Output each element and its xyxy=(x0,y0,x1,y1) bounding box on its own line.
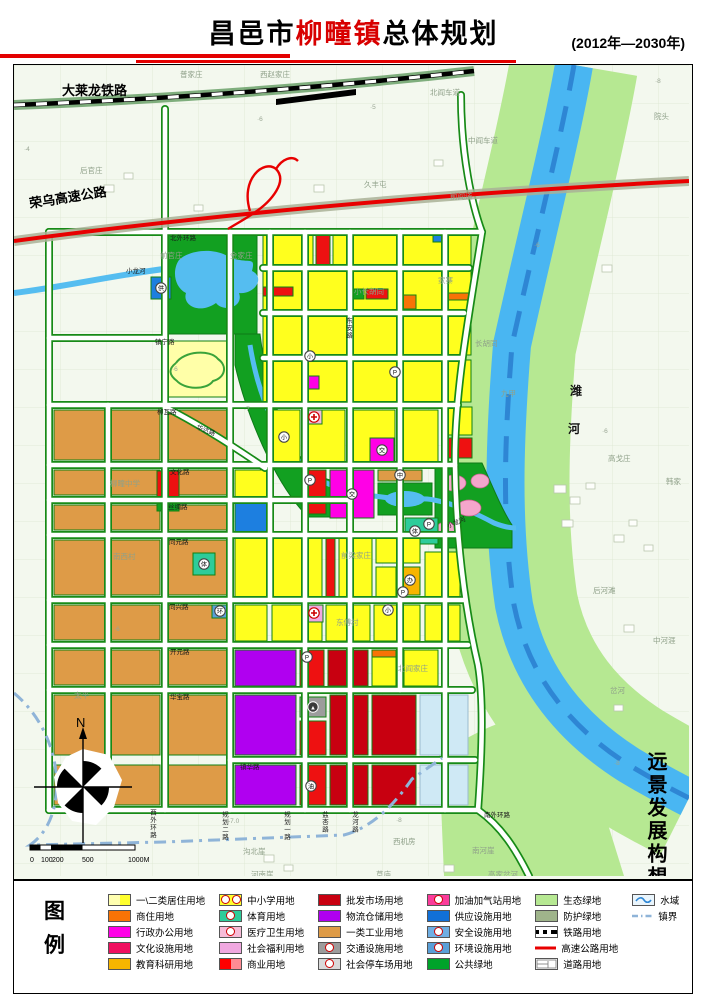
map-shape xyxy=(333,235,347,265)
map-shape xyxy=(235,535,267,597)
legend-item: 社会停车场用地 xyxy=(318,957,413,970)
map-shape: 交 xyxy=(349,490,355,498)
legend-label: 铁路用地 xyxy=(563,925,601,939)
legend-label: 供应设施用地 xyxy=(455,909,512,923)
map-shape: 办 xyxy=(407,576,413,584)
title-highlight: 柳疃镇 xyxy=(296,19,383,49)
legend-label: 镇界 xyxy=(658,909,677,923)
map-shape xyxy=(226,911,235,920)
P-icon: P xyxy=(424,519,434,529)
map-shape xyxy=(325,943,334,952)
map-label: 北阎家庄 xyxy=(398,663,428,673)
医-icon xyxy=(309,412,319,422)
legend-item: 医疗卫生用地 xyxy=(219,925,304,938)
park-pond xyxy=(385,491,425,507)
map-shape xyxy=(226,927,235,936)
map-shape xyxy=(235,695,296,755)
map-shape xyxy=(633,895,654,905)
map-shape: 体 xyxy=(201,560,208,568)
legend-item: 中小学用地 xyxy=(219,893,304,906)
map-shape: P xyxy=(308,477,312,484)
legend-item: 供应设施用地 xyxy=(427,909,522,922)
map-label: 前梁家庄 xyxy=(341,550,371,560)
P-icon: P xyxy=(398,587,408,597)
map-shape: 环 xyxy=(217,608,223,615)
map-shape: P xyxy=(401,589,405,596)
map-shape xyxy=(632,911,653,921)
map-shape xyxy=(624,625,634,632)
map-label: 前官庄 xyxy=(160,250,183,260)
小-icon: 小 xyxy=(279,432,289,442)
legend-item: 安全设施用地 xyxy=(427,925,522,938)
map-label: 九甲 xyxy=(501,389,516,398)
map-shape xyxy=(325,959,334,968)
legend-label: 一\二类居住用地 xyxy=(136,893,205,907)
legend-label: 商业用地 xyxy=(247,957,285,971)
legend-column: 生态绿地防护绿地铁路用地高速公路用地道路用地 xyxy=(535,893,618,970)
transport-icon: ▲ xyxy=(308,702,318,712)
legend-item: 高速公路用地 xyxy=(535,941,618,954)
map-shape xyxy=(434,943,443,952)
map-shape xyxy=(602,265,612,272)
map-label: 河南崖 xyxy=(251,869,274,876)
map-label: 镇华路 xyxy=(240,762,260,771)
map-shape xyxy=(351,315,397,355)
map-shape xyxy=(403,295,416,309)
legend-label: 防护绿地 xyxy=(563,909,601,923)
legend-swatch-solid xyxy=(535,910,558,922)
map-label: 沟北崖 xyxy=(243,846,266,856)
map-shape xyxy=(51,845,83,850)
map-label: 草庙 xyxy=(376,869,391,876)
map-label: 小龙河 xyxy=(126,266,146,275)
map-shape xyxy=(54,605,106,640)
map-shape: 小 xyxy=(385,606,392,614)
legend-swatch-icon xyxy=(427,926,450,938)
map-shape xyxy=(235,765,296,805)
map-shape xyxy=(264,855,274,862)
legend-item: 体育用地 xyxy=(219,909,304,922)
legend-item: 行政办公用地 xyxy=(108,925,205,938)
map-shape xyxy=(109,895,120,905)
legend-item: 交通设施用地 xyxy=(318,941,413,954)
交-icon: 交 xyxy=(347,489,357,499)
legend-swatch-icon xyxy=(427,942,450,954)
legend-swatch-water xyxy=(632,894,655,906)
scale-tick: 500 xyxy=(82,857,94,864)
map-label: 后河滩 xyxy=(593,585,616,595)
legend-swatch-solid xyxy=(535,894,558,906)
P-icon: P xyxy=(305,475,315,485)
map-label: 文化路 xyxy=(170,467,190,476)
小-icon: 小 xyxy=(305,351,315,361)
map-shape xyxy=(124,173,133,179)
legend-swatch-solid xyxy=(427,910,450,922)
map-shape xyxy=(165,765,227,805)
map-shape xyxy=(339,535,372,597)
legend-title-char: 例 xyxy=(44,929,108,963)
map-shape xyxy=(194,205,203,211)
油-icon: 油 xyxy=(306,781,316,791)
legend-column: 中小学用地体育用地医疗卫生用地社会福利用地商业用地 xyxy=(219,893,304,970)
legend-swatch-solid xyxy=(318,894,341,906)
map-shape xyxy=(54,470,106,495)
map-shape xyxy=(539,930,543,934)
供-icon: 供 xyxy=(156,283,166,293)
legend: 图例 一\二类居住用地商住用地行政办公用地文化设施用地教育科研用地中小学用地体育… xyxy=(13,880,693,994)
legend-swatch-solid xyxy=(108,942,131,954)
map-shape: 交 xyxy=(379,446,385,454)
legend-item: 道路用地 xyxy=(535,957,618,970)
map-shape xyxy=(644,545,653,551)
map-label: 北外环路 xyxy=(170,233,197,242)
map-shape xyxy=(221,895,230,904)
map-label: -7.0 xyxy=(228,818,240,825)
map-label: 院头 xyxy=(654,111,669,121)
legend-label: 物流仓储用地 xyxy=(346,909,403,923)
legend-swatch-solid xyxy=(219,942,242,954)
map-label: 华宝路 xyxy=(170,692,190,701)
legend-item: 社会福利用地 xyxy=(219,941,304,954)
map-frame: 01002005001000M 大莱龙铁路荣乌高速公路潍河小龙河小龙河普家庄西赵… xyxy=(13,64,693,880)
legend-swatch-road xyxy=(535,958,558,970)
map-label: 前阎道 xyxy=(450,191,473,201)
legend-item: 一\二类居住用地 xyxy=(108,893,205,906)
header: 昌邑市柳疃镇总体规划 (2012年—2030年) xyxy=(0,0,707,64)
legend-swatch-bound xyxy=(632,911,653,921)
map-label: 丝绸路 xyxy=(168,502,188,511)
map-label: ·5 xyxy=(370,104,376,111)
map-shape: 中 xyxy=(397,471,403,479)
map-label: 太平 xyxy=(74,690,89,700)
legend-swatch-solid xyxy=(108,926,131,938)
legend-item: 生态绿地 xyxy=(535,893,618,906)
legend-swatch-split xyxy=(219,958,242,970)
map-shape xyxy=(434,927,443,936)
map-label: ·8 xyxy=(614,760,620,767)
map-shape: 体 xyxy=(412,527,419,535)
map-shape: P xyxy=(427,521,431,528)
map-shape: 小 xyxy=(307,352,314,360)
map-shape xyxy=(111,540,160,595)
map-shape xyxy=(434,895,443,904)
map-label: 中河涯 xyxy=(653,635,676,645)
map-label: 柳疃中学 xyxy=(110,478,140,488)
中-icon: 中 xyxy=(395,470,405,480)
compass-north-label: N xyxy=(76,715,85,730)
legend-label: 加油加气站用地 xyxy=(455,893,522,907)
map-shape xyxy=(111,695,160,755)
map-label: 高戈庄 xyxy=(608,453,631,463)
交-icon: 交 xyxy=(377,445,387,455)
map-shape xyxy=(372,650,396,657)
map-label: ·6 xyxy=(534,242,540,249)
map-shape xyxy=(536,927,557,937)
map-shape xyxy=(314,185,324,192)
map-shape xyxy=(629,520,637,526)
map-label: ·6 xyxy=(602,428,608,435)
小-icon: 小 xyxy=(383,605,393,615)
map-shape xyxy=(326,535,335,597)
map-label: 北阎车道 xyxy=(430,87,460,97)
map-label: 家寨 xyxy=(438,275,453,285)
map-shape xyxy=(376,567,396,597)
map-shape xyxy=(401,315,442,355)
map-shape xyxy=(232,895,241,904)
map-label: 普家庄 xyxy=(180,69,203,79)
map-label: 岔河 xyxy=(610,685,625,695)
map-shape xyxy=(536,959,557,969)
map-label: 西机房 xyxy=(393,836,416,846)
map-shape xyxy=(306,270,347,310)
map-shape xyxy=(54,540,106,595)
legend-item: 商住用地 xyxy=(108,909,205,922)
map-shape: 油 xyxy=(308,782,314,790)
map-shape xyxy=(570,497,580,504)
P-icon: P xyxy=(390,367,400,377)
legend-column: 水域镇界 xyxy=(632,893,679,970)
legend-column: 加油加气站用地供应设施用地安全设施用地环境设施用地公共绿地 xyxy=(427,893,522,970)
map-shape xyxy=(54,505,106,530)
map-shape xyxy=(535,943,556,953)
map-shape xyxy=(401,360,442,402)
map-label: 大莱龙铁路 xyxy=(62,83,128,98)
map-shape xyxy=(111,505,160,530)
scale-tick: 200 xyxy=(52,857,64,864)
map-label: 久丰屯 xyxy=(364,179,387,189)
scale-tick: 0 xyxy=(30,857,34,864)
map-shape: ▲ xyxy=(310,705,316,711)
legend-column: 一\二类居住用地商住用地行政办公用地文化设施用地教育科研用地 xyxy=(108,893,205,970)
map-shape: P xyxy=(393,369,397,376)
legend-column: 批发市场用地物流仓储用地一类工业用地交通设施用地社会停车场用地 xyxy=(318,893,413,970)
legend-item: 文化设施用地 xyxy=(108,941,205,954)
legend-label: 医疗卫生用地 xyxy=(247,925,304,939)
map-shape xyxy=(636,897,651,901)
legend-title-char: 图 xyxy=(44,895,108,929)
legend-label: 商住用地 xyxy=(136,909,174,923)
map-shape xyxy=(351,360,397,402)
map-label: 潍 xyxy=(569,383,582,398)
legend-item: 镇界 xyxy=(632,909,679,922)
map-shape xyxy=(220,959,231,969)
legend-label: 道路用地 xyxy=(563,957,601,971)
map-shape xyxy=(308,376,319,389)
legend-label: 环境设施用地 xyxy=(455,941,512,955)
map-label: ·8 xyxy=(396,817,402,824)
map-shape xyxy=(554,485,566,493)
legend-columns: 一\二类居住用地商住用地行政办公用地文化设施用地教育科研用地中小学用地体育用地医… xyxy=(108,881,679,970)
map-label: 开元路 xyxy=(170,647,190,656)
map-shape: 小 xyxy=(281,433,288,441)
map-shape xyxy=(284,865,293,871)
legend-label: 社会停车场用地 xyxy=(346,957,413,971)
map-shape xyxy=(30,845,41,850)
legend-item: 水域 xyxy=(632,893,679,906)
legend-swatch-icon xyxy=(318,942,341,954)
map-shape xyxy=(372,695,416,755)
map-label: ·8 xyxy=(655,78,661,85)
legend-label: 交通设施用地 xyxy=(346,941,403,955)
map-label: 金家庄 xyxy=(230,250,253,260)
map-label: 小长胡同 xyxy=(354,286,384,296)
legend-swatch-icon2 xyxy=(219,894,242,906)
map-shape xyxy=(433,235,442,242)
map-shape xyxy=(54,650,106,685)
legend-item: 一类工业用地 xyxy=(318,925,413,938)
map-shape: 供 xyxy=(158,284,164,292)
map-label: 南西村 xyxy=(113,551,136,561)
map-label: 后官庄 xyxy=(80,165,103,175)
legend-label: 社会福利用地 xyxy=(247,941,304,955)
map-shape xyxy=(316,235,330,265)
map-shape xyxy=(111,410,160,460)
legend-item: 物流仓储用地 xyxy=(318,909,413,922)
legend-swatch-icon xyxy=(427,894,450,906)
map-shape xyxy=(547,930,551,934)
legend-label: 文化设施用地 xyxy=(136,941,193,955)
map-shape xyxy=(235,470,267,498)
map-label: 东傅村 xyxy=(336,617,359,627)
map-label: ·6 xyxy=(172,366,178,373)
legend-label: 安全设施用地 xyxy=(455,925,512,939)
map-shape xyxy=(111,605,160,640)
scale-bar xyxy=(30,845,135,850)
legend-label: 一类工业用地 xyxy=(346,925,403,939)
map-shape xyxy=(434,160,443,166)
map-shape xyxy=(471,474,489,488)
title-prefix: 昌邑市 xyxy=(209,19,296,49)
map-shape xyxy=(272,535,322,597)
title-suffix: 总体规划 xyxy=(383,19,499,49)
legend-label: 生态绿地 xyxy=(563,893,601,907)
环-icon: 环 xyxy=(215,606,225,616)
map-label: ·6 xyxy=(257,116,263,123)
legend-swatch-solid xyxy=(318,926,341,938)
scale-tick: 1000M xyxy=(128,857,150,864)
legend-label: 行政办公用地 xyxy=(136,925,193,939)
plan-sheet: 昌邑市柳疃镇总体规划 (2012年—2030年) xyxy=(0,0,707,1000)
map-shape xyxy=(306,315,347,355)
map-label: 韩家 xyxy=(666,476,681,486)
legend-title: 图例 xyxy=(14,881,108,963)
map-shape xyxy=(586,483,595,489)
map-label: 高家岔河 xyxy=(488,869,518,876)
legend-label: 体育用地 xyxy=(247,909,285,923)
legend-swatch-solid xyxy=(108,910,131,922)
办-icon: 办 xyxy=(405,575,415,585)
map-label: 柳瓦路 xyxy=(157,407,177,416)
side-note-vertical: 远景发展构想图 xyxy=(644,751,668,876)
legend-swatch-icon xyxy=(219,926,242,938)
legend-swatch-solid xyxy=(318,910,341,922)
legend-label: 公共绿地 xyxy=(455,957,493,971)
体-icon: 体 xyxy=(199,559,209,569)
legend-label: 中小学用地 xyxy=(247,893,295,907)
legend-item: 教育科研用地 xyxy=(108,957,205,970)
map-shape xyxy=(562,520,573,527)
map-shape xyxy=(235,650,296,686)
legend-item: 商业用地 xyxy=(219,957,304,970)
map-shape xyxy=(350,235,397,265)
map-label: 长胡同 xyxy=(475,338,498,348)
map-label: 河 xyxy=(567,421,580,436)
map-shape xyxy=(165,695,227,755)
scale-ticks: 01002005001000M xyxy=(30,857,150,864)
legend-label: 高速公路用地 xyxy=(561,941,618,955)
legend-label: 教育科研用地 xyxy=(136,957,193,971)
legend-swatch-hwy xyxy=(535,943,556,953)
legend-item: 批发市场用地 xyxy=(318,893,413,906)
red-rule-title xyxy=(136,60,516,63)
legend-swatch-split xyxy=(108,894,131,906)
map-shape: P xyxy=(305,654,309,661)
map-label: 同兴路 xyxy=(169,602,189,611)
map-shape xyxy=(120,895,131,905)
map-shape xyxy=(614,535,624,542)
map-shape xyxy=(111,650,160,685)
legend-item: 防护绿地 xyxy=(535,909,618,922)
map-label: 同元路 xyxy=(169,537,189,546)
legend-item: 加油加气站用地 xyxy=(427,893,522,906)
legend-swatch-icon xyxy=(318,958,341,970)
map-shape xyxy=(400,410,438,462)
plan-period: (2012年—2030年) xyxy=(571,33,685,53)
map-label: ·4 xyxy=(24,146,30,153)
体-icon: 体 xyxy=(410,526,420,536)
red-rule-left xyxy=(0,54,290,58)
legend-swatch-rail xyxy=(535,926,558,938)
map-label: 中阎车道 xyxy=(468,135,498,145)
map-shape xyxy=(235,605,267,641)
legend-swatch-icon xyxy=(219,910,242,922)
map-shape xyxy=(614,705,623,711)
legend-swatch-solid xyxy=(427,958,450,970)
map-label: ·6 xyxy=(114,626,120,633)
map-label: 南外环路 xyxy=(484,810,511,819)
P-icon: P xyxy=(302,652,312,662)
map-shape xyxy=(444,865,454,872)
legend-item: 公共绿地 xyxy=(427,957,522,970)
legend-swatch-solid xyxy=(108,958,131,970)
map-label: 镇宁路 xyxy=(155,337,175,346)
planning-map: 01002005001000M 大莱龙铁路荣乌高速公路潍河小龙河小龙河普家庄西赵… xyxy=(14,65,689,876)
map-shape xyxy=(231,959,242,969)
legend-label: 批发市场用地 xyxy=(346,893,403,907)
map-shape xyxy=(54,410,106,460)
福-icon xyxy=(309,608,319,618)
legend-item: 铁路用地 xyxy=(535,925,618,938)
map-label: ·7 xyxy=(244,406,250,413)
legend-label: 水域 xyxy=(660,893,679,907)
legend-item: 环境设施用地 xyxy=(427,941,522,954)
map-shape xyxy=(235,502,267,532)
map-label: 西赵家庄 xyxy=(260,69,290,79)
map-label: 南河崖 xyxy=(472,845,495,855)
